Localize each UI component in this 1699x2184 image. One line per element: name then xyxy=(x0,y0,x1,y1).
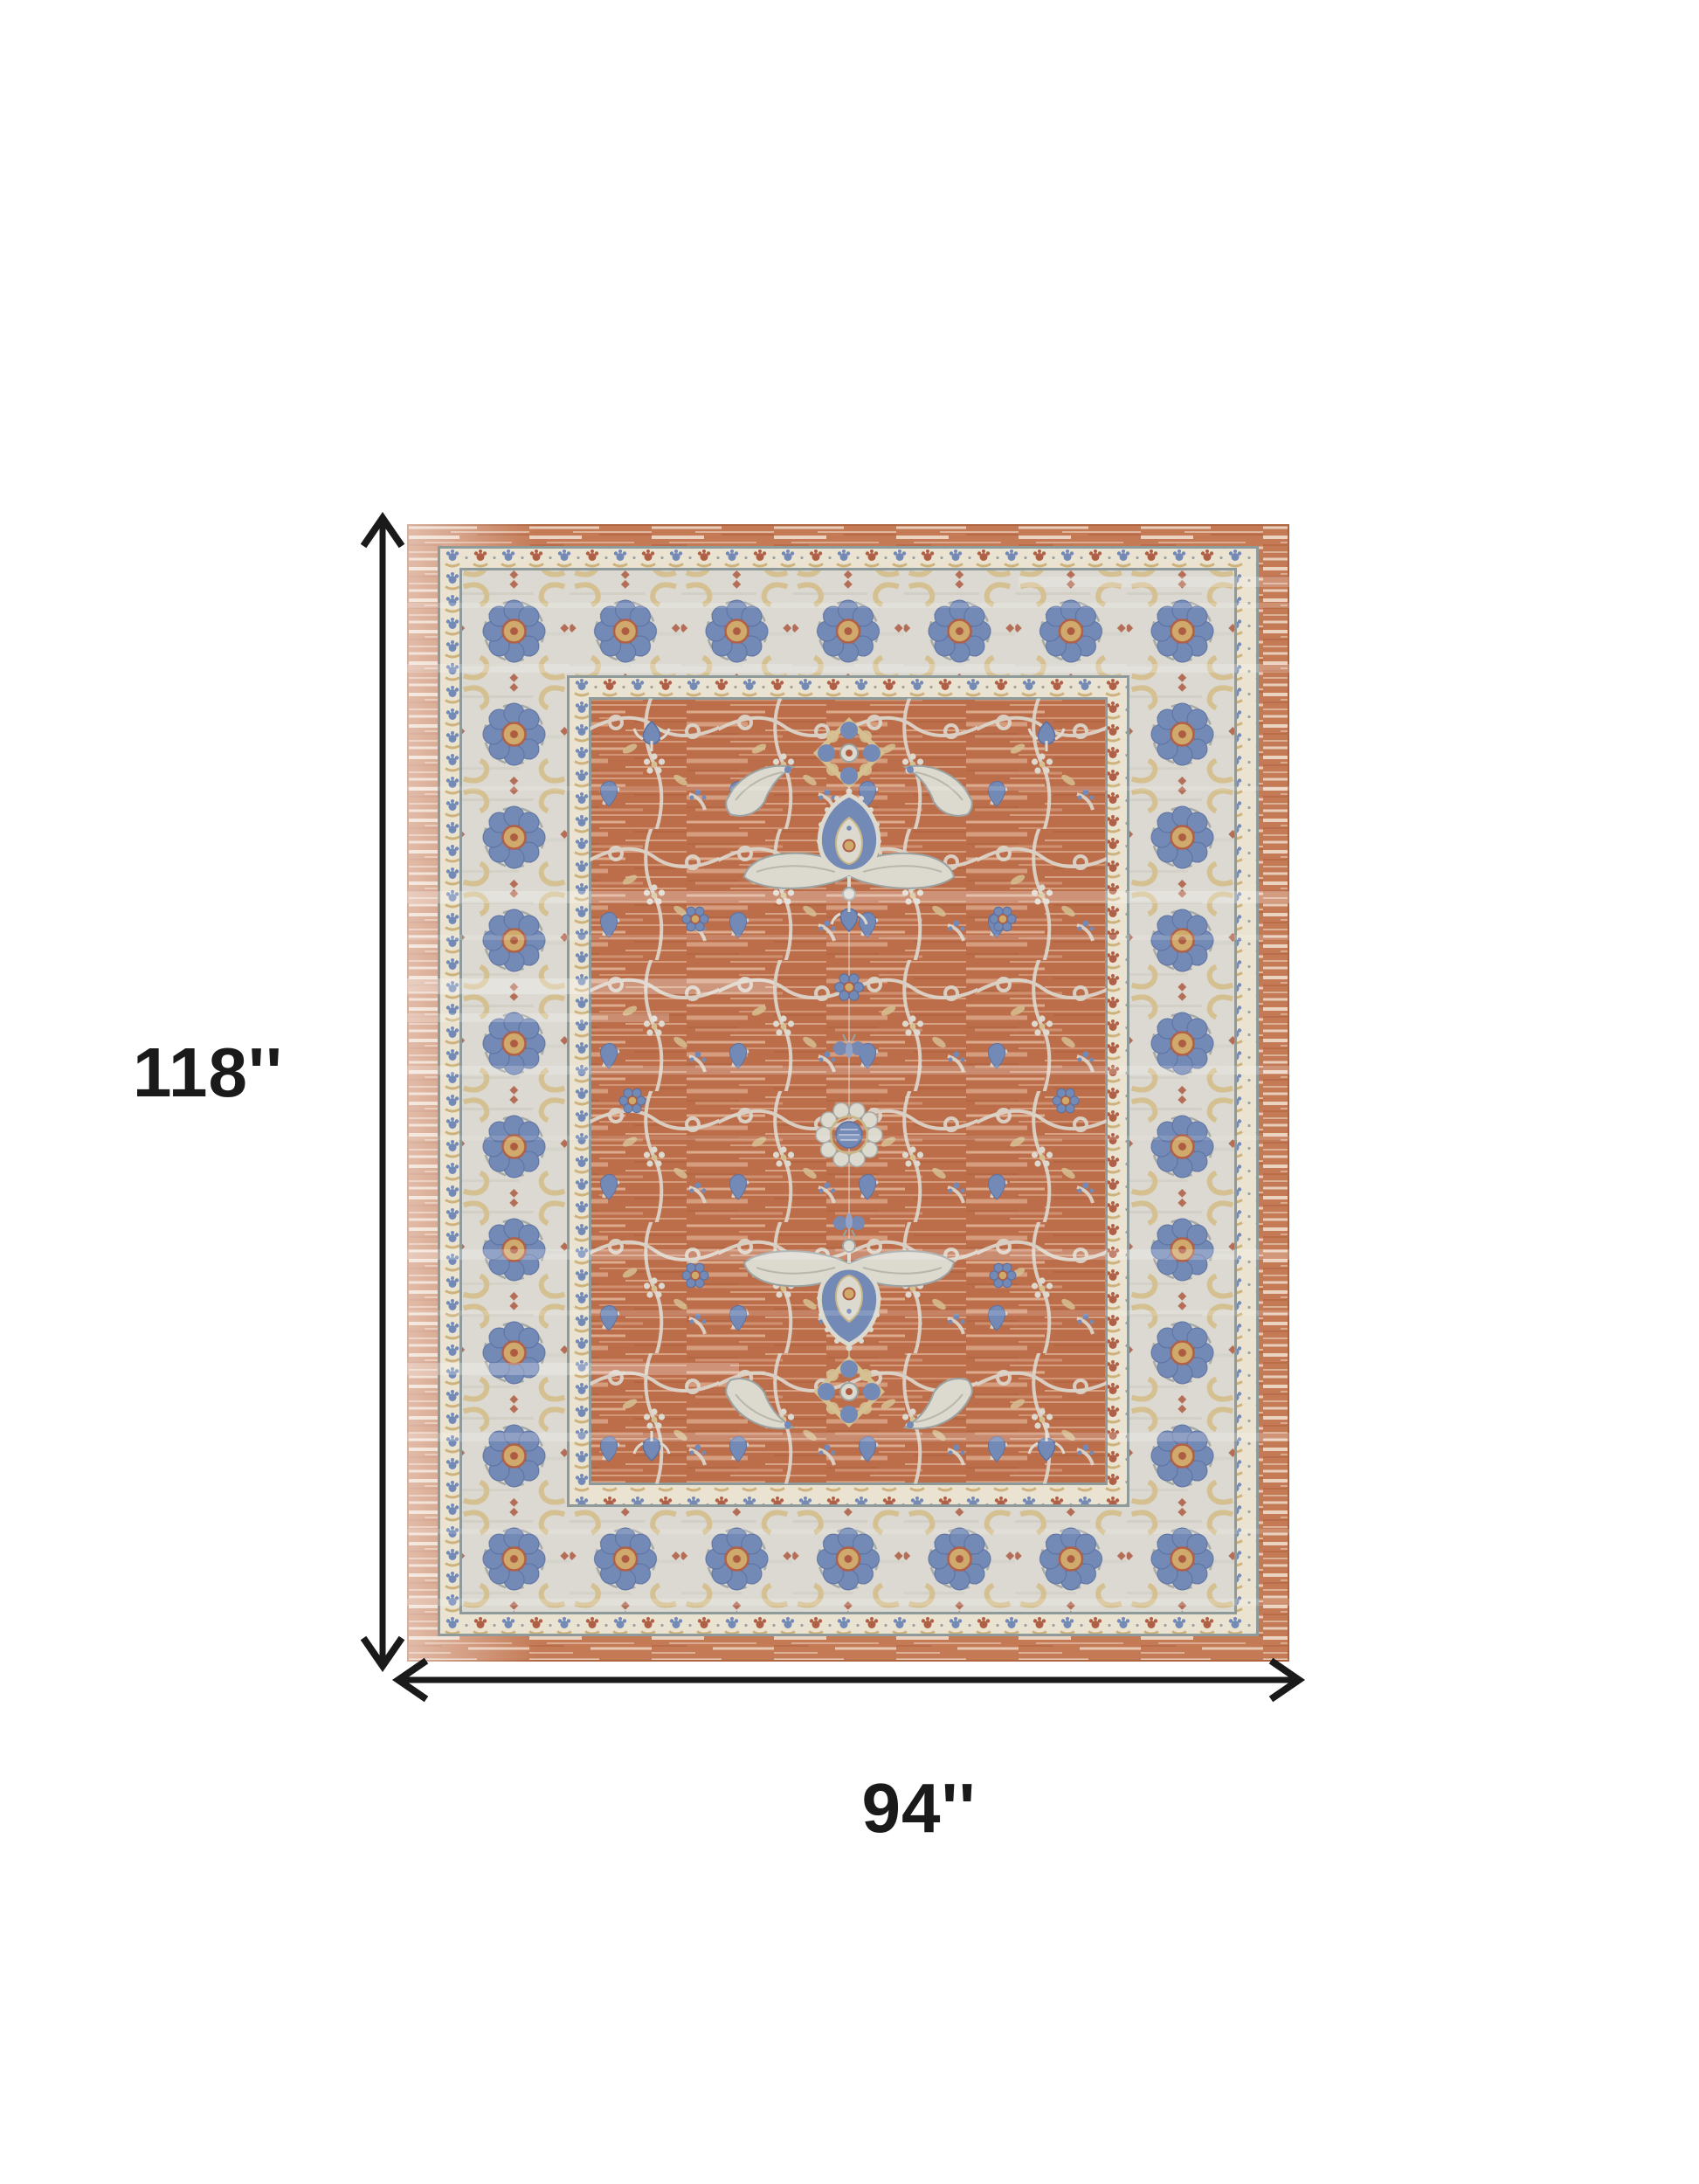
rug-dimension-figure: 118'' 94'' xyxy=(0,0,1699,2184)
rug-image xyxy=(407,524,1289,1662)
width-dimension-arrow xyxy=(384,1643,1319,1717)
height-dimension-arrow xyxy=(348,505,421,1681)
width-dimension-label: 94'' xyxy=(779,1765,1059,1852)
height-dimension-label: 118'' xyxy=(68,1029,348,1116)
